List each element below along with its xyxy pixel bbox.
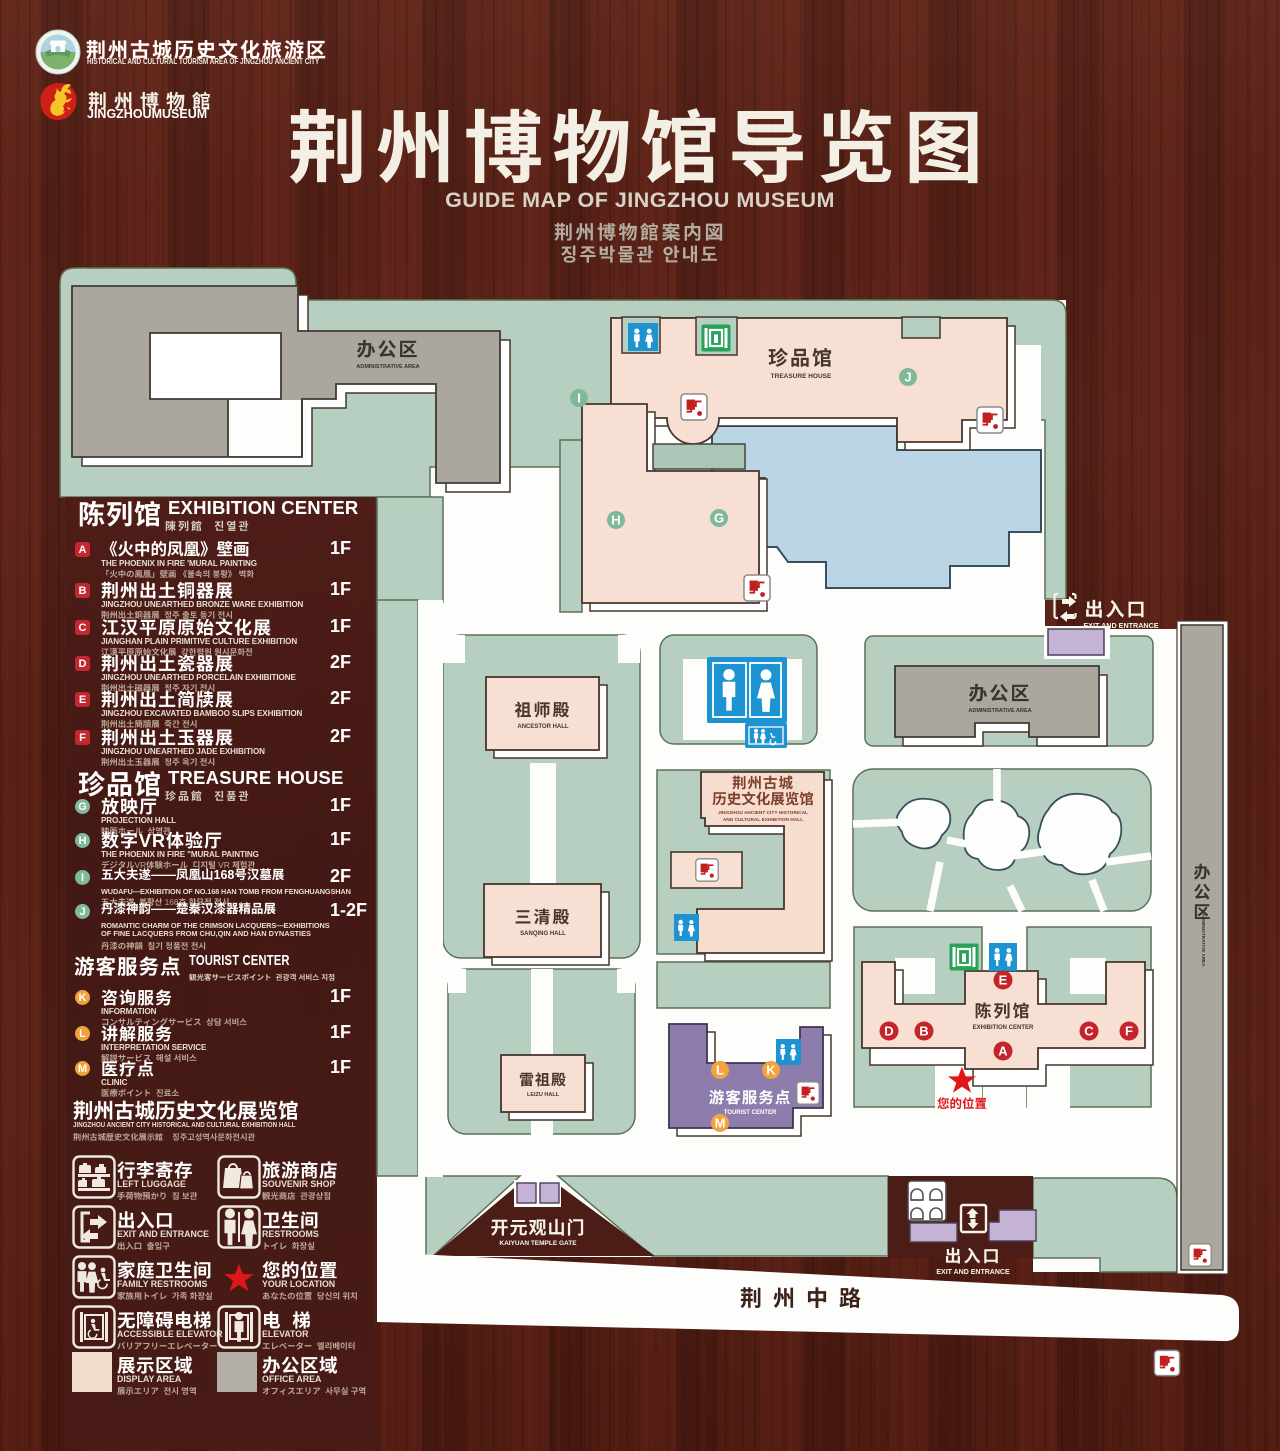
svg-text:K: K [766,1063,776,1078]
svg-text:三清殿: 三清殿 [515,908,572,927]
svg-text:荆州中路: 荆州中路 [740,1286,872,1311]
svg-text:荆州古城: 荆州古城 [732,775,794,792]
svg-text:L: L [716,1063,724,1078]
svg-text:珍品馆: 珍品馆 [768,347,834,370]
svg-text:LEIZU HALL: LEIZU HALL [527,1092,560,1098]
svg-text:G: G [714,511,724,526]
svg-text:办公区: 办公区 [968,683,1031,705]
svg-text:ADMINISTRATIVE AREA: ADMINISTRATIVE AREA [356,364,419,370]
svg-text:出入口: 出入口 [945,1247,1002,1266]
svg-text:AND CULTURAL EXHIBITION HALL: AND CULTURAL EXHIBITION HALL [723,817,803,823]
svg-text:A: A [998,1044,1008,1059]
svg-text:C: C [1084,1024,1094,1039]
svg-text:出入口: 出入口 [1084,599,1147,621]
svg-text:B: B [919,1024,928,1039]
svg-text:ADMINISTRATIVE AREA: ADMINISTRATIVE AREA [968,708,1031,714]
svg-text:EXIT AND ENTRANCE: EXIT AND ENTRANCE [936,1269,1010,1276]
svg-text:M: M [715,1116,726,1131]
svg-text:办: 办 [1194,863,1211,882]
svg-text:雷祖殿: 雷祖殿 [519,1072,567,1089]
svg-text:ADMINISTRATIVE AREA: ADMINISTRATIVE AREA [1201,914,1206,968]
svg-text:EXHIBITION CENTER: EXHIBITION CENTER [973,1025,1034,1031]
svg-text:J: J [904,370,911,385]
svg-text:TREASURE HOUSE: TREASURE HOUSE [771,373,832,380]
svg-text:KAIYUAN TEMPLE GATE: KAIYUAN TEMPLE GATE [499,1240,577,1247]
svg-text:游客服务点: 游客服务点 [709,1089,792,1107]
svg-text:SANQING HALL: SANQING HALL [520,931,566,937]
svg-text:H: H [611,513,620,528]
svg-text:ANCESTOR HALL: ANCESTOR HALL [517,724,569,730]
svg-text:EXIT AND ENTRANCE: EXIT AND ENTRANCE [1083,621,1158,630]
svg-text:陈列馆: 陈列馆 [975,1002,1032,1021]
svg-text:D: D [884,1024,893,1039]
svg-text:祖师殿: 祖师殿 [515,701,572,720]
svg-text:JINGZHOU ANCIENT CITY HISTORIC: JINGZHOU ANCIENT CITY HISTORICAL [718,810,808,816]
svg-text:开元观山门: 开元观山门 [491,1218,586,1238]
svg-text:公: 公 [1194,883,1211,902]
svg-text:F: F [1125,1024,1133,1039]
svg-text:I: I [577,391,581,406]
svg-text:您的位置: 您的位置 [937,1097,987,1111]
svg-text:TOURIST CENTER: TOURIST CENTER [724,1110,777,1116]
svg-text:办公区: 办公区 [356,339,419,361]
svg-text:E: E [999,973,1008,988]
svg-text:历史文化展览馆: 历史文化展览馆 [712,791,814,808]
